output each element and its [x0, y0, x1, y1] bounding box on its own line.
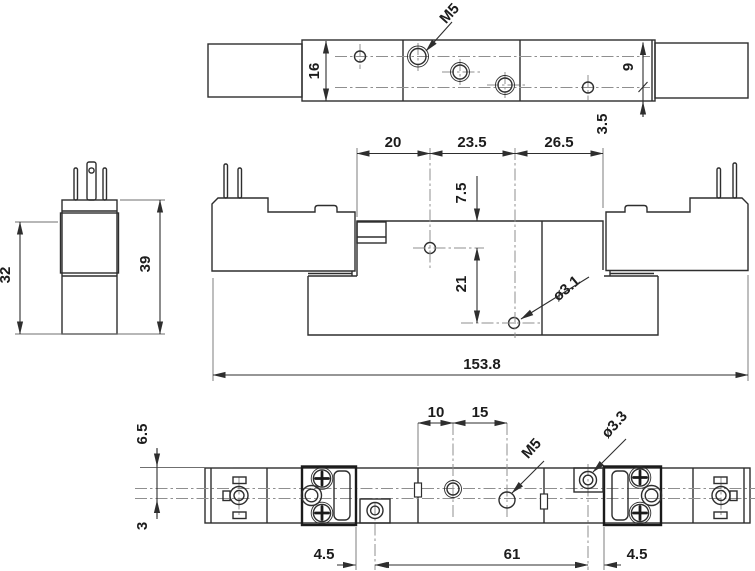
gasket-slot	[334, 471, 350, 520]
label-dia-3-3: ø3.3	[593, 408, 631, 472]
dim-text-153-8: 153.8	[463, 356, 501, 373]
dim-chain-spacing: 20 23.5 26.5	[357, 134, 603, 217]
dim-front-7-5: 7.5	[453, 176, 477, 221]
dim-text-26-5: 26.5	[544, 134, 573, 151]
seal-slot	[541, 494, 548, 509]
dim-front-21: 21	[453, 248, 477, 323]
dim-text-16: 16	[306, 63, 323, 80]
dim-bottom-chain: 4.5 61 4.5	[314, 527, 648, 570]
dim-text-61: 61	[504, 546, 521, 563]
dim-top-height-16: 16	[306, 41, 326, 101]
right-solenoid	[606, 163, 748, 271]
pin-icon	[733, 163, 737, 198]
technical-drawing-page: 16 9 3.5 M5 32	[0, 0, 755, 571]
side-view: 32 39	[0, 162, 165, 334]
right-solenoid-interface	[604, 467, 662, 526]
left-solenoid-interface	[302, 467, 357, 526]
screw-icon	[631, 469, 648, 486]
gasket-slot	[612, 471, 628, 520]
dim-text-6-5: 6.5	[134, 424, 151, 445]
bottom-view: 10 15 M5 ø3.3 6.5 3	[134, 404, 755, 570]
top-view-left-endplate	[208, 44, 302, 97]
front-view: 20 23.5 26.5 7.5 21 ø3.1 153.8	[212, 134, 748, 381]
pin-icon	[238, 168, 242, 198]
seal-slot	[415, 483, 422, 497]
dim-text-4-5-right: 4.5	[627, 546, 648, 563]
right-end-connector	[712, 477, 737, 519]
screw-icon	[631, 504, 648, 521]
dia-3-3-text: ø3.3	[598, 408, 631, 442]
pilot-block	[357, 222, 386, 243]
pin-icon	[103, 168, 107, 200]
dim-overall-153-8: 153.8	[213, 275, 748, 381]
label-m5-bottom: M5	[512, 435, 545, 493]
dia-3-1-text: ø3.1	[550, 272, 584, 304]
dim-text-10: 10	[428, 404, 445, 421]
m5-top-leader	[426, 22, 452, 51]
top-view-body	[302, 40, 655, 101]
side-view-connector-pins	[74, 162, 107, 200]
top-view: 16 9 3.5 M5	[208, 0, 748, 134]
m5-bottom-text: M5	[518, 435, 545, 462]
dim-text-15: 15	[472, 404, 489, 421]
dim-text-3-5: 3.5	[594, 114, 611, 135]
dim-bottom-left-offsets: 6.5 3	[134, 424, 233, 531]
tab-hole	[89, 168, 94, 173]
dim-text-3: 3	[134, 522, 151, 530]
pin-icon	[224, 164, 228, 198]
left-solenoid	[212, 164, 355, 271]
top-view-right-endplate	[655, 43, 748, 98]
screw-icon	[313, 470, 330, 487]
dia-3-1-leader	[521, 277, 589, 319]
side-view-solenoid-body	[62, 200, 117, 334]
valve-drawing-canvas: 16 9 3.5 M5 32	[0, 0, 755, 571]
dim-side-32: 32	[0, 222, 165, 334]
dim-text-20: 20	[385, 134, 402, 151]
dim-text-39: 39	[137, 256, 154, 273]
dim-bottom-10-15: 10 15	[418, 404, 507, 466]
pin-icon	[74, 168, 78, 200]
dim-text-32: 32	[0, 267, 14, 284]
pin-icon	[717, 168, 721, 198]
dim-text-23-5: 23.5	[457, 134, 486, 151]
label-m5-top: M5	[426, 0, 463, 51]
screw-icon	[313, 504, 330, 521]
dim-text-7-5: 7.5	[453, 183, 470, 204]
dim-text-4-5-left: 4.5	[314, 546, 335, 563]
label-dia-3-1: ø3.1	[521, 272, 589, 319]
top-port-hole-4	[496, 76, 515, 95]
bottom-view-body	[205, 468, 750, 523]
m5-top-text: M5	[436, 0, 463, 27]
dim-text-21: 21	[453, 276, 470, 293]
dim-side-39: 39	[120, 200, 165, 334]
dim-text-9: 9	[620, 63, 637, 71]
left-end-connector	[223, 477, 248, 519]
top-port-hole-3	[451, 63, 470, 82]
